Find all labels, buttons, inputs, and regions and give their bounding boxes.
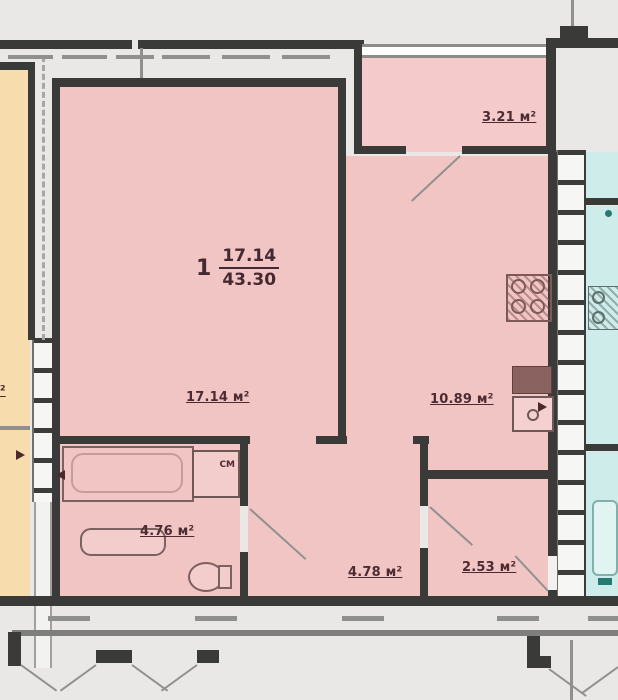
hallway-left-wall-lower: [420, 548, 428, 598]
canopy-diagonal: [161, 664, 198, 691]
top-right-block: [560, 26, 588, 38]
floor-plan: СМ 1 17.1: [0, 0, 618, 700]
unit-living-area: 17.14: [219, 246, 279, 269]
kitchen-area-label: 10.89 м²: [430, 392, 494, 407]
neighbor-counter-icon: [592, 500, 618, 576]
stove-burner: [511, 279, 526, 294]
unit-number: 1: [196, 256, 211, 281]
kitchen-counter-icon: [512, 366, 552, 394]
neighbor-left-line: [0, 426, 30, 430]
canopy-diagonal: [548, 668, 586, 697]
washing-machine-icon: СМ: [192, 450, 240, 498]
room-neighbor-left: [0, 70, 30, 596]
balcony-left-wall: [354, 44, 362, 152]
bathroom-top-wall: [52, 436, 250, 444]
bottom-dash: [195, 616, 237, 621]
expansion-joint-dashed: [42, 56, 45, 340]
neighbor-stove-icon: [588, 286, 618, 330]
living-area-label: 17.14 м²: [186, 390, 250, 405]
top-right-wall: [546, 38, 618, 48]
neighbor-stove-burner: [592, 291, 605, 304]
bathroom-right-wall-upper: [240, 444, 248, 506]
facade-wall-mid: [138, 40, 364, 49]
entry-door-gap: [548, 556, 557, 590]
canopy-diagonal: [582, 666, 618, 693]
facade-window-sill: [222, 55, 270, 59]
expansion-joint-lower: [34, 502, 52, 668]
neighbor-right-divider-top: [586, 198, 618, 205]
living-left-wall: [52, 78, 60, 598]
canopy-diagonal: [60, 664, 97, 691]
neighbor-right-divider-mid: [586, 444, 618, 451]
facade-window-sill: [282, 55, 330, 59]
bottom-dash: [497, 616, 539, 621]
balcony-bottom-wall-a: [354, 146, 406, 154]
balcony-window-band: [362, 44, 554, 58]
vent-shaft-right: [556, 150, 586, 596]
balcony-right-wall: [546, 44, 556, 154]
stove-icon: [506, 274, 552, 322]
canopy-stub: [197, 650, 219, 663]
room-neighbor-right-top: [586, 152, 618, 198]
bottom-dash: [48, 616, 90, 621]
corridor-top-stub: [316, 436, 347, 444]
corridor-area-label: 4.78 м²: [348, 565, 402, 580]
hallway-left-wall-upper: [420, 436, 428, 506]
hallway-area-label: 2.53 м²: [462, 560, 516, 575]
kitchen-hallway-wall: [428, 470, 548, 479]
living-top-wall: [52, 78, 346, 87]
top-right-line: [571, 0, 574, 26]
canopy-stub: [8, 632, 21, 666]
bottom-exterior-wall: [0, 596, 618, 606]
facade-jog-line: [140, 48, 143, 78]
neighbor-stove-burner: [592, 311, 605, 324]
neighbor-teal-accent: [598, 578, 612, 585]
door-arrow-icon: [56, 470, 65, 480]
door-arrow-icon: [16, 450, 25, 460]
kitchen-sink-icon: [512, 396, 554, 432]
unit-area-fraction: 17.14 43.30: [219, 246, 279, 290]
bathtub-basin: [71, 453, 183, 493]
bottom-dash: [342, 616, 384, 621]
stove-burner: [511, 299, 526, 314]
neighbor-left-area-label: м²: [0, 384, 6, 399]
room-balcony: [362, 48, 546, 152]
bathtub-icon: [62, 446, 194, 502]
washing-machine-label: СМ: [219, 460, 238, 470]
neighbor-dot: [605, 210, 612, 217]
facade-window-sill: [116, 55, 154, 59]
stove-burner: [530, 299, 545, 314]
bottom-dash: [588, 616, 618, 621]
canopy-stub: [96, 650, 132, 663]
living-kitchen-wall: [338, 86, 346, 444]
canopy-diagonal: [20, 664, 57, 691]
bottom-right-line: [570, 640, 573, 700]
neighbor-left-right-wall: [28, 62, 35, 340]
stove-burner: [530, 279, 545, 294]
unit-area-label: 1 17.14 43.30: [196, 246, 279, 290]
toilet-tank: [218, 565, 232, 589]
door-arrow-icon: [538, 402, 547, 412]
balcony-bottom-wall-b: [462, 146, 548, 154]
unit-total-area: 43.30: [222, 269, 276, 290]
bathroom-area-label: 4.76 м²: [140, 524, 194, 539]
canopy-stub: [527, 656, 551, 668]
facade-wall-left: [0, 40, 132, 49]
facade-window-sill: [162, 55, 210, 59]
bathroom-right-wall-lower: [240, 552, 248, 598]
facade-window-sill: [8, 55, 53, 59]
facade-window-sill: [62, 55, 107, 59]
balcony-area-label: 3.21 м²: [482, 110, 536, 125]
